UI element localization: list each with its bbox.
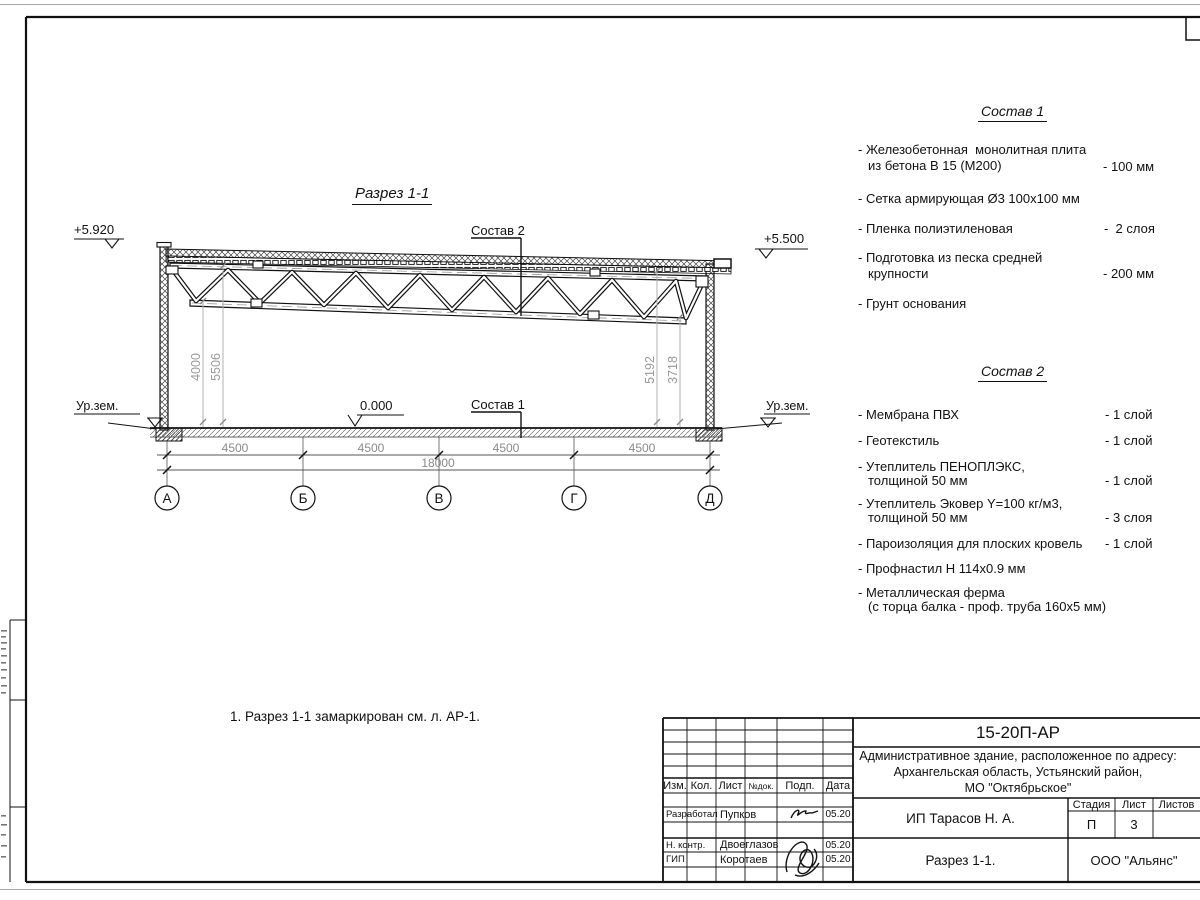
list-item: из бетона В 15 (М200) (868, 158, 1002, 173)
signature-name: Пупков (718, 807, 778, 822)
list-item-value: - 1 слой (1105, 407, 1153, 422)
elevation-top-right: +5.500 (764, 232, 804, 247)
list-item: - Мембрана ПВХ (858, 407, 959, 422)
height-dim-5192: 5192 (643, 340, 657, 400)
list-item: крупности (868, 266, 928, 281)
list-item: - Железобетонная монолитная плита (858, 142, 1086, 157)
callout-floor-label: Состав 1 (471, 398, 525, 413)
ground-level-label-right: Ур.зем. (766, 399, 808, 413)
side-stamp-cut-text (1, 630, 7, 858)
height-dim-3718: 3718 (666, 340, 680, 400)
company-name: ООО "Альянс" (1068, 838, 1200, 882)
list-item-value: - 1 слой (1105, 473, 1153, 488)
document-title: Разрез 1-1. (853, 838, 1068, 882)
column-header-ndok: №док. (745, 778, 777, 793)
axis-bubble-d: Д (698, 486, 722, 510)
composition1-title: Состав 1 (978, 103, 1047, 122)
callout-roof-label: Состав 2 (471, 224, 525, 239)
signature-role: ГИП (664, 852, 716, 867)
signature-name: Коротаев (718, 852, 780, 867)
list-item-value: - 200 мм (1103, 266, 1154, 281)
list-item: - Металлическая ферма (858, 585, 1005, 600)
list-item: (с торца балка - проф. труба 160х5 мм) (868, 599, 1106, 614)
list-item-value: - 3 слоя (1105, 510, 1152, 525)
span-dim: 4500 (629, 442, 656, 456)
list-item: толщиной 50 мм (868, 510, 968, 525)
axis-bubble-a: А (155, 486, 179, 510)
elevation-zero: 0.000 (360, 399, 393, 414)
list-item: - Геотекстиль (858, 433, 939, 448)
signature-name: Двоеглазов (718, 838, 780, 852)
project-address-line3: МО "Октябрьское" (853, 780, 1183, 796)
column-header-izm: Изм. (663, 778, 687, 793)
list-item: - Подготовка из песка средней (858, 250, 1042, 265)
axis-bubble-b: Б (291, 486, 315, 510)
project-address-line2: Архангельская область, Устьянский район, (853, 764, 1183, 780)
column-header-kol: Кол. (687, 778, 716, 793)
column-header-list: Лист (716, 778, 745, 793)
column-header-data: Дата (823, 778, 853, 793)
list-item: - Утеплитель ПЕНОПЛЭКС, (858, 459, 1025, 474)
stage-value: П (1068, 811, 1115, 838)
sheets-label: Листов (1153, 798, 1200, 811)
list-item: - Грунт основания (858, 296, 966, 311)
composition2-title: Состав 2 (978, 363, 1047, 382)
signature-date: 05.20 (823, 852, 853, 867)
drawing-sheet: Разрез 1-1 +5.920 +5.500 0.000 Ур.зем. У… (0, 0, 1200, 900)
total-dim: 18000 (421, 457, 454, 471)
list-item-value: - 1 слой (1105, 433, 1153, 448)
sheet-value: 3 (1115, 811, 1153, 838)
span-dim: 4500 (358, 442, 385, 456)
signature-scribbles (786, 810, 819, 876)
section-floor (108, 423, 782, 441)
list-item-value: - 2 слоя (1104, 221, 1155, 236)
list-item: - Пароизоляция для плоских кровель (858, 536, 1082, 551)
list-item-value: - 100 мм (1103, 159, 1154, 174)
elevation-top-left: +5.920 (74, 223, 114, 238)
list-item: толщиной 50 мм (868, 473, 968, 488)
signature-role: Н. контр. (664, 838, 716, 852)
list-item-value: - 1 слой (1105, 536, 1153, 551)
height-dim-lines (200, 263, 683, 427)
client-name: ИП Тарасов Н. А. (853, 798, 1068, 838)
span-dim: 4500 (493, 442, 520, 456)
list-item: - Сетка армирующая Ø3 100х100 мм (858, 191, 1080, 206)
view-title: Разрез 1-1 (352, 185, 432, 205)
sheet-label: Лист (1115, 798, 1153, 811)
signature-role: Разработал (664, 807, 716, 822)
signature-date: 05.20 (823, 838, 853, 852)
list-item: - Пленка полиэтиленовая (858, 221, 1013, 236)
axis-bubble-g: Г (562, 486, 586, 510)
axis-bubble-v: В (427, 486, 451, 510)
side-stamp (10, 620, 26, 882)
stage-label: Стадия (1068, 798, 1115, 811)
document-code: 15-20П-АР (853, 718, 1183, 747)
column-header-podp: Подп. (777, 778, 823, 793)
height-dim-4000: 4000 (189, 337, 203, 397)
ground-level-label-left: Ур.зем. (76, 399, 118, 413)
drawing-note: 1. Разрез 1-1 замаркирован см. л. АР-1. (230, 709, 480, 725)
project-address-line1: Административное здание, расположенное п… (853, 748, 1183, 764)
list-item: - Утеплитель Эковер Y=100 кг/м3, (858, 496, 1062, 511)
span-dim: 4500 (222, 442, 249, 456)
list-item: - Профнастил Н 114х0.9 мм (858, 561, 1026, 576)
height-dim-5506: 5506 (209, 337, 223, 397)
signature-date: 05.20 (823, 807, 853, 822)
